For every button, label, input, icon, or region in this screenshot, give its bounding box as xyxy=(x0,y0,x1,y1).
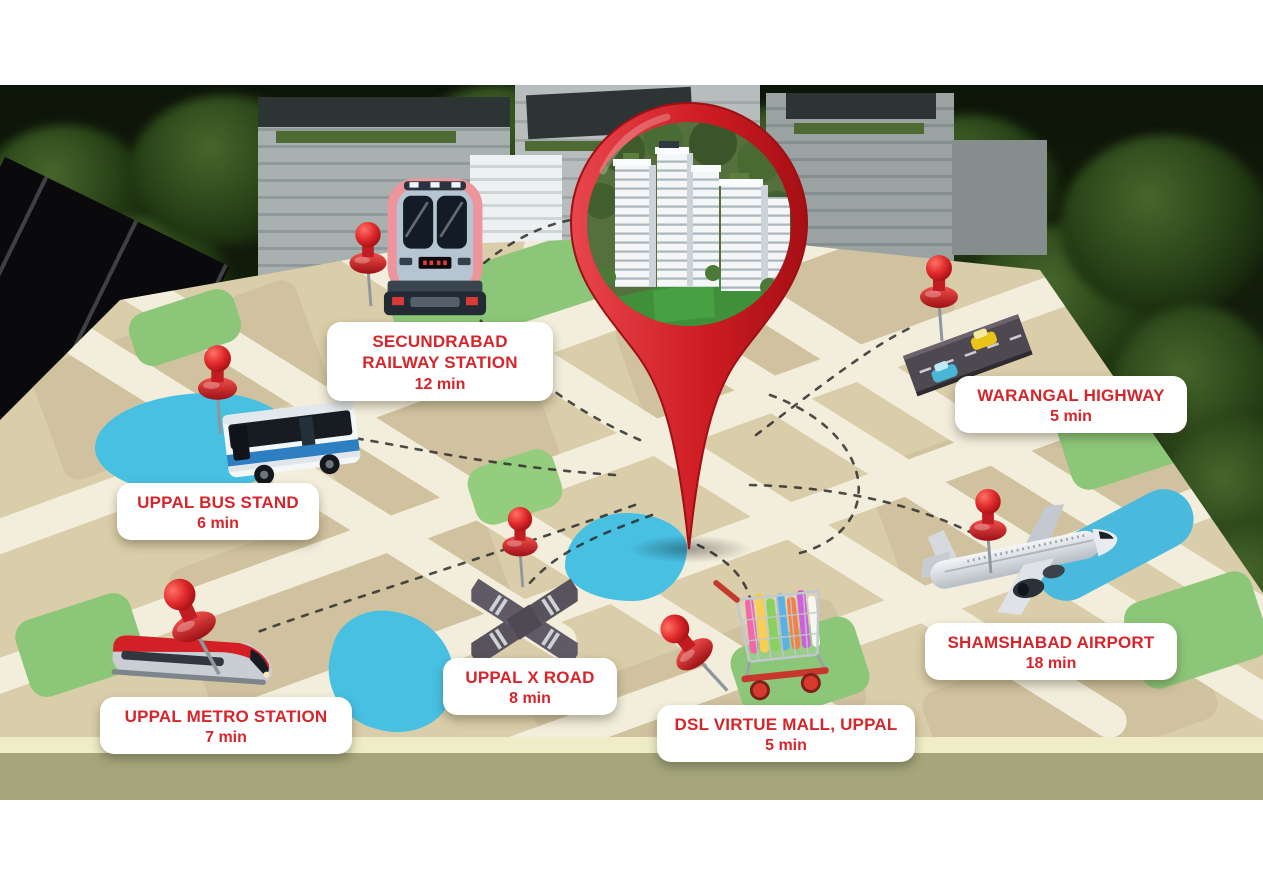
location-map-infographic: SECUNDRABAD RAILWAY STATION 12 min UPPAL… xyxy=(0,0,1263,892)
location-name: UPPAL BUS STAND xyxy=(127,492,309,513)
location-name: SHAMSHABAD AIRPORT xyxy=(935,632,1167,653)
location-name: SECUNDRABAD RAILWAY STATION xyxy=(337,331,543,374)
background-building xyxy=(952,140,1047,255)
project-location-pin xyxy=(563,101,815,553)
location-name: UPPAL X ROAD xyxy=(453,667,607,688)
bottom-white-margin xyxy=(0,800,1263,892)
map-scene: SECUNDRABAD RAILWAY STATION 12 min UPPAL… xyxy=(0,85,1263,800)
location-card-uppal-bus-stand: UPPAL BUS STAND 6 min xyxy=(117,483,319,540)
top-white-margin xyxy=(0,0,1263,85)
location-name: UPPAL METRO STATION xyxy=(110,706,342,727)
airplane-icon xyxy=(910,490,1135,635)
location-time: 5 min xyxy=(965,408,1177,426)
roof-garden xyxy=(276,131,456,143)
location-card-warangal-highway: WARANGAL HIGHWAY 5 min xyxy=(955,376,1187,433)
pushpin-icon xyxy=(338,220,398,310)
location-name: DSL VIRTUE MALL, UPPAL xyxy=(667,714,905,735)
pushpin-icon xyxy=(492,505,548,591)
location-card-dsl-virtue-mall: DSL VIRTUE MALL, UPPAL 5 min xyxy=(657,705,915,762)
location-time: 6 min xyxy=(127,515,309,533)
location-card-uppal-metro-station: UPPAL METRO STATION 7 min xyxy=(100,697,352,754)
location-card-shamshabad-airport: SHAMSHABAD AIRPORT 18 min xyxy=(925,623,1177,680)
location-name: WARANGAL HIGHWAY xyxy=(965,385,1177,406)
pushpin-icon xyxy=(958,487,1018,577)
location-time: 5 min xyxy=(667,737,905,755)
location-time: 12 min xyxy=(337,376,543,394)
pushpin-icon xyxy=(185,343,250,438)
location-card-uppal-x-road: UPPAL X ROAD 8 min xyxy=(443,658,617,715)
location-time: 7 min xyxy=(110,729,342,747)
location-card-secundrabad-railway: SECUNDRABAD RAILWAY STATION 12 min xyxy=(327,322,553,401)
location-time: 8 min xyxy=(453,690,607,708)
building-roof xyxy=(258,97,510,127)
pushpin-icon xyxy=(908,253,970,345)
location-time: 18 min xyxy=(935,655,1167,673)
tree-blob xyxy=(1060,135,1263,315)
map-edge-side xyxy=(0,753,1263,800)
